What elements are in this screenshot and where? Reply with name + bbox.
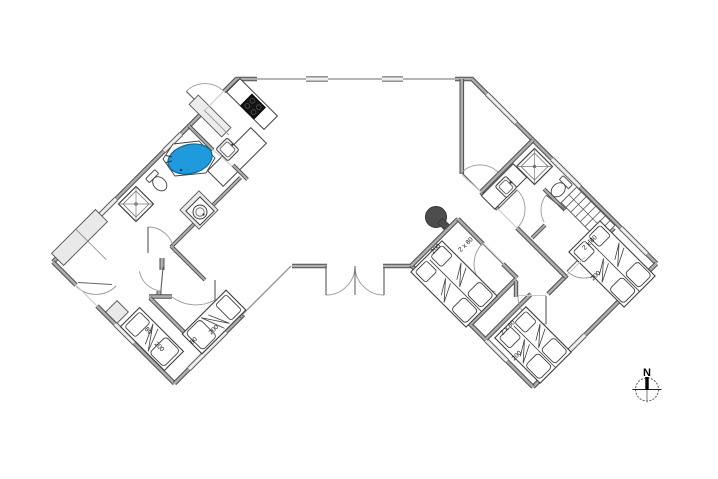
svg-text:N: N	[643, 367, 651, 379]
